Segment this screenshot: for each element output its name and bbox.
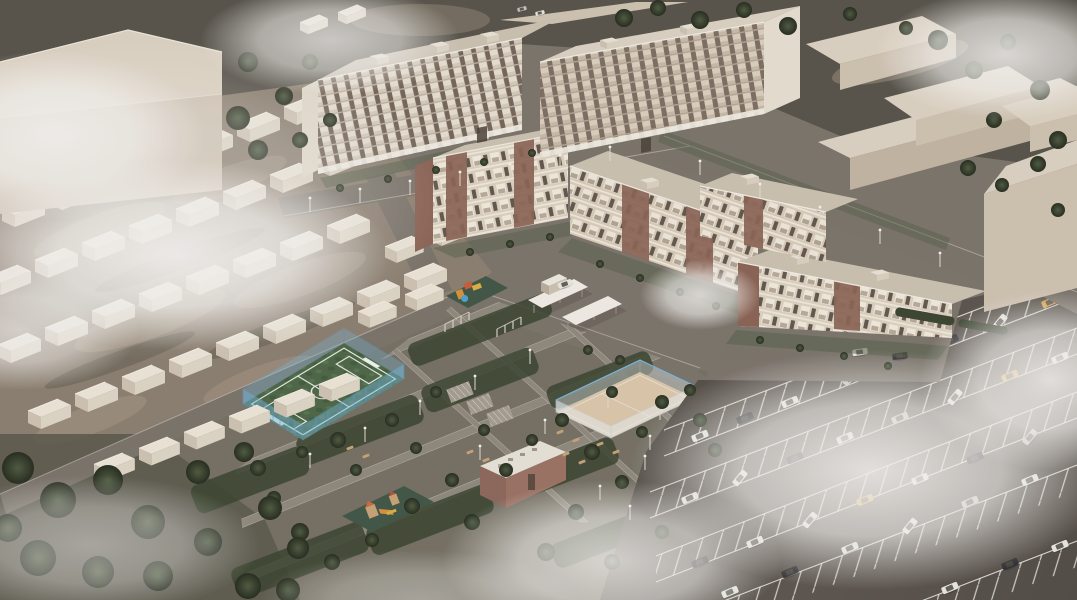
render-canvas — [0, 0, 1077, 600]
architectural-render — [0, 0, 1077, 600]
tone-overlay — [0, 0, 1077, 600]
